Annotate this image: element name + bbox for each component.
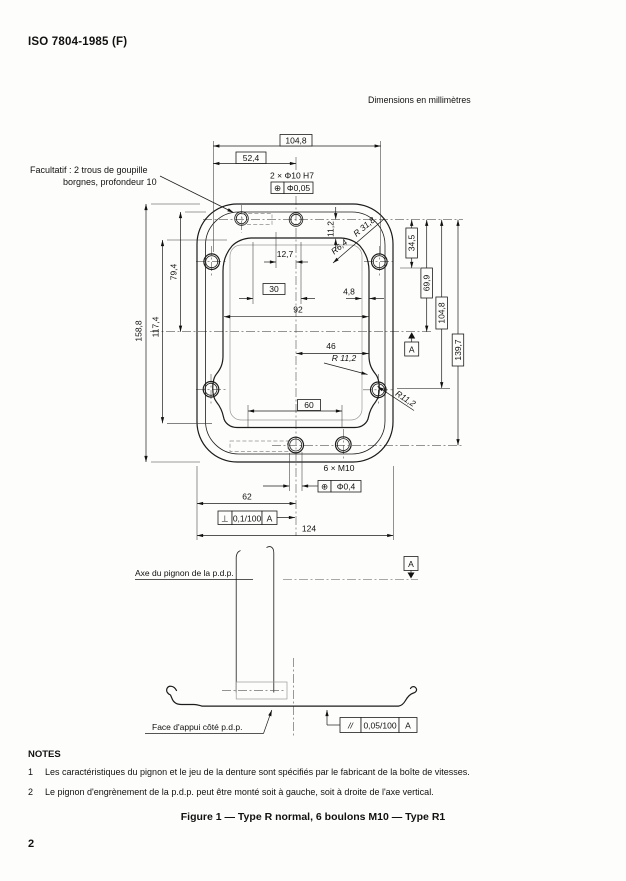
pin-callout: 2 × Φ10 H7 ⊕ Φ0,05 [270,171,314,194]
plate-plan-view: 104,8 52,4 30 60 12,7 92 46 4,8 62 124 R… [134,135,464,541]
para-tolerance-value: 0,05/100 [363,721,396,731]
dim-label: 69,9 [422,274,432,291]
dim-r-11-2-corner: R 11,2 [332,353,357,363]
hidden-slot [230,441,288,452]
position-symbol-icon: ⊕ [274,184,281,194]
dim-label: 60 [304,400,314,410]
section-view: A [135,547,418,737]
note-text: Les caractéristiques du pignon et le jeu… [45,767,470,777]
note-number: 1 [28,767,45,777]
dim-label: 34,5 [407,234,417,251]
dim-r-31-8: R 31,8 [351,215,377,239]
corner-radius-leader [324,363,368,375]
dim-79-4: 79,4 [169,263,179,280]
note-text: Le pignon d'engrènement de la p.d.p. peu… [45,787,434,797]
dim-104-8-top: 104,8 [280,135,312,147]
datum-letter: A [409,345,415,355]
datum-a-flag-axis: A [404,557,418,579]
dim-label: 104,8 [285,135,307,145]
dim-4-8: 4,8 [343,287,355,297]
dim-69-9: 69,9 [421,268,433,298]
bolt-callout: 6 × M10 ⊕ Φ0,4 [318,463,361,492]
datum-triangle-icon [408,573,415,579]
notes-heading: NOTES [28,749,61,760]
perp-tolerance-value: 0,1/100 [233,513,262,523]
dim-30: 30 [263,284,285,295]
dim-139-7: 139,7 [452,334,464,366]
dim-r6-4: R6,4 [329,237,349,256]
datum-a-flag: A [405,332,419,356]
dim-r11-2-scallop: R11,2 [394,388,418,409]
parallelism-frame: // 0,05/100 A [327,710,417,733]
para-datum-ref: A [405,721,411,731]
dim-label: 52,4 [243,153,260,163]
bolt-callout-text: 6 × M10 [324,463,355,473]
dim-62: 62 [242,492,252,502]
position-symbol-icon: ⊕ [321,482,328,492]
note-item-2: 2Le pignon d'engrènement de la p.d.p. pe… [28,787,603,797]
dim-124: 124 [302,524,316,534]
dim-117-4: 117,4 [151,316,161,337]
dim-46: 46 [326,341,336,351]
pin-holes [235,212,303,227]
perp-datum-ref: A [267,513,273,523]
dim-92: 92 [293,305,303,315]
note-item-1: 1Les caractéristiques du pignon et le je… [28,767,603,777]
dim-104-8-right: 104,8 [436,297,448,329]
dim-label: 104,8 [437,302,447,324]
perpendicularity-frame: ⊥ 0,1/100 A [218,511,295,525]
pin-tolerance-value: Φ0,05 [287,183,311,193]
dim-12-7: 12,7 [277,249,294,259]
shaft-outline [236,547,274,693]
dim-52-4: 52,4 [236,152,266,164]
document-page: ISO 7804-1985 (F) Dimensions en millimèt… [0,0,626,881]
dim-34-5: 34,5 [406,228,418,258]
perpendicularity-symbol-icon: ⊥ [221,514,228,524]
dim-60: 60 [298,400,321,411]
dim-label: 30 [269,284,279,294]
face-label: Face d'appui côté p.d.p. [152,722,242,732]
page-number: 2 [28,838,34,850]
axis-label: Axe du pignon de la p.d.p. [135,568,234,578]
extension-lines [151,141,450,540]
dim-158-8: 158,8 [134,320,144,342]
technical-drawing: 104,8 52,4 30 60 12,7 92 46 4,8 62 124 R… [0,0,626,881]
flange-section-profile [167,686,417,706]
dim-label: 139,7 [453,339,463,361]
pin-callout-text: 2 × Φ10 H7 [270,171,314,181]
dim-11-2: 11,2 [326,221,336,237]
figure-caption: Figure 1 — Type R normal, 6 boulons M10 … [0,811,626,823]
datum-triangle-icon [408,332,415,338]
datum-letter: A [408,559,414,569]
note-number: 2 [28,787,45,797]
bolt-tolerance-value: Φ0,4 [337,481,356,491]
optional-pin-leader [160,176,234,213]
